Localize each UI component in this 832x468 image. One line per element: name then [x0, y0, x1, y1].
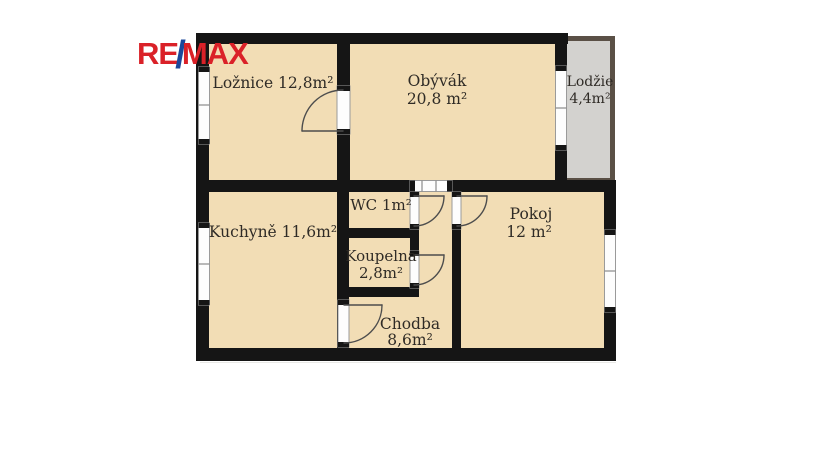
wall-top — [196, 33, 568, 44]
room-label-loznice: Ložnice 12,8m² — [213, 74, 334, 92]
wall-wc-koupelna-divider — [349, 228, 419, 238]
window-obyvak-lodzie — [556, 66, 567, 150]
floorplan-page: Ložnice 12,8m² Obývák 20,8 m² Lodžie 4,4… — [0, 0, 832, 468]
room-label-chodba-area: 8,6m² — [387, 331, 433, 349]
room-label-koupelna-area: 2,8m² — [359, 264, 403, 282]
room-label-kuchyne: Kuchyně 11,6m² — [209, 223, 337, 241]
remax-logo-re: RE — [137, 36, 178, 71]
glazed-partition-obyvak — [410, 181, 452, 192]
window-pokoj — [605, 230, 616, 312]
loggia-frame — [565, 39, 613, 181]
remax-logo: RE/MAX — [137, 36, 248, 75]
door-opening-kuchyne — [338, 300, 349, 347]
photo-edge-line — [200, 362, 616, 363]
room-label-pokoj-area: 12 m² — [506, 223, 552, 241]
room-label-obyvak-area: 20,8 m² — [407, 90, 467, 108]
room-label-pokoj-name: Pokoj — [510, 205, 553, 223]
remax-logo-max: MAX — [182, 36, 248, 71]
room-label-lodzie-name: Lodžie — [567, 74, 614, 90]
door-opening-loznice — [337, 86, 350, 134]
room-label-koupelna-name: Koupelna — [345, 247, 416, 265]
loggia-area — [565, 39, 613, 181]
door-opening-pokoj — [452, 192, 461, 229]
room-label-obyvak-name: Obývák — [408, 72, 467, 90]
wall-bottom — [196, 348, 616, 361]
wall-koupelna-bottom — [349, 287, 419, 297]
room-label-wc: WC 1m² — [350, 196, 411, 214]
floorplan-drawing: Ložnice 12,8m² Obývák 20,8 m² Lodžie 4,4… — [0, 0, 832, 468]
wall-middle-horizontal — [196, 180, 616, 192]
room-label-lodzie-area: 4,4m² — [569, 91, 610, 107]
window-loznice — [199, 67, 210, 144]
window-kuchyne — [199, 223, 210, 305]
